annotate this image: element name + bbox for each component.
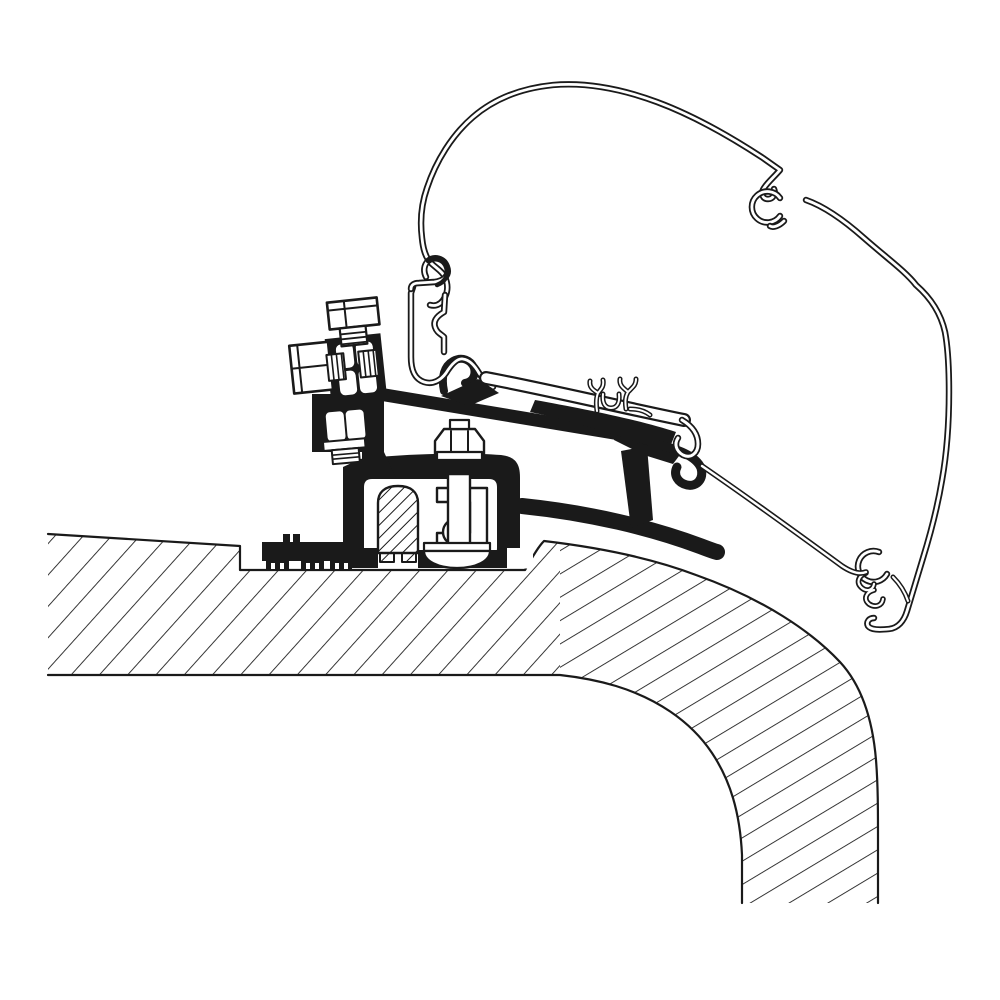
clamp-base-plate	[424, 543, 490, 551]
roof-slab-curve	[544, 541, 878, 903]
clamp-bolt-tip	[450, 420, 469, 429]
lock-nut-facet-left	[325, 411, 345, 441]
top-bolt-head	[327, 297, 380, 329]
roof-plug	[378, 486, 418, 553]
awning-profile-right-skin	[806, 200, 949, 630]
clamp-bolt-shaft	[448, 474, 470, 545]
roof-edge-inner	[48, 675, 742, 903]
lock-nut-facet-right	[345, 409, 365, 439]
rail-channel-left	[411, 287, 493, 387]
awning-profile-right-skin	[806, 200, 949, 630]
awning-profile-skin	[421, 84, 780, 305]
diagram-page	[0, 0, 1000, 1000]
awning-adapter-cross-section-diagram	[0, 0, 1000, 1000]
foot-step-notch	[507, 548, 533, 569]
clamp-nut-washer	[437, 452, 482, 460]
awning-profile-skirt	[702, 466, 866, 573]
foot-serration-slots	[271, 563, 348, 569]
lock-threads	[332, 448, 360, 464]
diagram-shape-root	[48, 84, 949, 903]
